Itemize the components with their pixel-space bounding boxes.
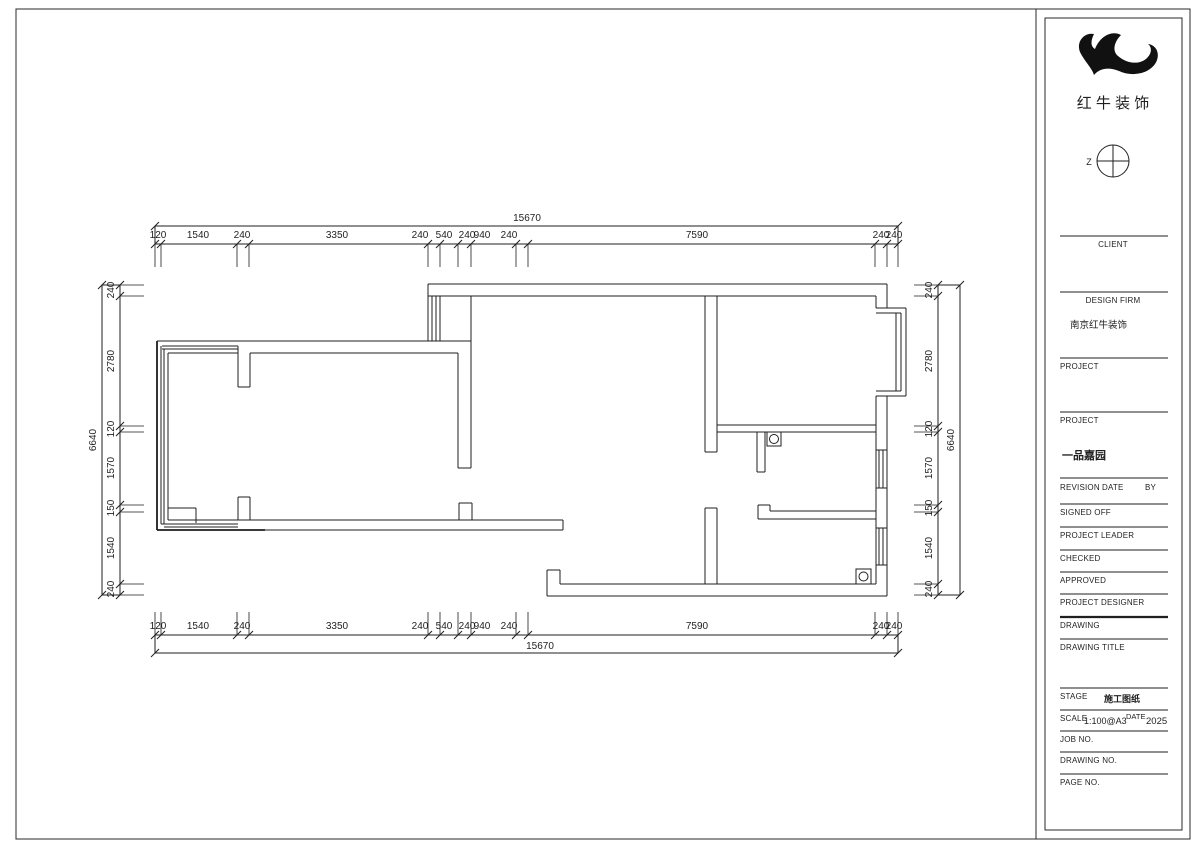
dim-label: 1540 (106, 536, 117, 559)
project-label: PROJECT (1060, 362, 1099, 371)
flue-circle-icon (770, 435, 779, 444)
dim-label: 3350 (326, 230, 349, 241)
dim-label: 120 (106, 420, 117, 437)
stage-value: 施工图纸 (1104, 693, 1140, 704)
dim-witness (155, 612, 898, 635)
dim-label: 2780 (106, 349, 117, 372)
dim-label: 1540 (187, 621, 210, 632)
dim-label: 240 (924, 580, 935, 597)
drawing-title-label: DRAWING TITLE (1060, 643, 1125, 652)
flue-symbol (856, 569, 871, 584)
design-firm-label: DESIGN FIRM (1086, 296, 1141, 305)
dim-label: 240 (234, 621, 251, 632)
dim-label: 240 (501, 230, 518, 241)
dim-label: 3350 (326, 621, 349, 632)
dim-witness (120, 285, 144, 595)
dim-label-overall: 15670 (513, 213, 541, 224)
title-block: 红 牛 装 饰 Z CLIENT DESIGN FIRM (1060, 33, 1168, 787)
flue-circle-icon (859, 572, 868, 581)
project-leader-label: PROJECT LEADER (1060, 531, 1134, 540)
dim-label: 240 (886, 230, 903, 241)
project-designer-label: PROJECT DESIGNER (1060, 598, 1144, 607)
dim-label: 7590 (686, 230, 709, 241)
sheet-frame (16, 9, 1190, 839)
dim-label: 240 (501, 621, 518, 632)
dim-label: 240 (924, 281, 935, 298)
dim-label-overall: 6640 (88, 428, 99, 451)
dim-label: 240 (234, 230, 251, 241)
company-name: 红 牛 装 饰 (1077, 95, 1150, 112)
page-no-label: PAGE NO. (1060, 778, 1100, 787)
dim-label: 120 (150, 621, 167, 632)
dim-label: 240 (886, 621, 903, 632)
north-arrow (1097, 145, 1129, 177)
dimension-top: 15670 120 1540 240 3350 240 540 240 940 … (150, 213, 903, 267)
dim-label: 540 (436, 621, 453, 632)
dim-label: 120 (150, 230, 167, 241)
dimension-bottom: 120 1540 240 3350 240 540 240 940 240 75… (150, 612, 903, 657)
dim-label: 940 (474, 621, 491, 632)
scale-value: 1:100@A3 (1084, 716, 1127, 726)
dim-label: 240 (106, 580, 117, 597)
north-label: Z (1086, 157, 1092, 167)
dim-label: 2780 (924, 349, 935, 372)
scale-date-value: 2025 (1146, 716, 1167, 727)
dim-label: 120 (924, 420, 935, 437)
signed-off-label: SIGNED OFF (1060, 508, 1111, 517)
dim-label: 150 (924, 499, 935, 516)
drawing-no-label: DRAWING NO. (1060, 756, 1117, 765)
floor-plan (157, 284, 906, 596)
plan-walls-heavy (157, 341, 265, 530)
dim-witness (155, 244, 898, 267)
client-label: CLIENT (1098, 240, 1128, 249)
dim-label: 940 (474, 230, 491, 241)
checked-label: CHECKED (1060, 554, 1101, 563)
dim-label: 240 (106, 281, 117, 298)
sheet-border (16, 9, 1190, 839)
scale-date-label: DATE (1126, 712, 1145, 721)
plan-walls (157, 284, 906, 596)
dimension-left: 240 2780 120 1570 150 1540 240 6640 (88, 281, 144, 599)
stage-label: STAGE (1060, 692, 1088, 701)
drawing-label: DRAWING (1060, 621, 1100, 630)
design-firm-value: 南京红牛装饰 (1070, 319, 1127, 331)
dim-label-overall: 6640 (946, 428, 957, 451)
revision-label: REVISION (1060, 483, 1100, 492)
by-label: BY (1145, 483, 1157, 492)
dim-label: 150 (106, 499, 117, 516)
approved-label: APPROVED (1060, 576, 1106, 585)
dim-label: 1540 (187, 230, 210, 241)
job-no-label: JOB NO. (1060, 735, 1093, 744)
dim-label: 1540 (924, 536, 935, 559)
dim-label-overall: 15670 (526, 641, 554, 652)
date-label: DATE (1102, 483, 1124, 492)
dim-label: 7590 (686, 621, 709, 632)
dim-lines (155, 226, 898, 244)
dim-label: 540 (436, 230, 453, 241)
dim-label: 240 (412, 621, 429, 632)
floor-plan-sheet: 15670 120 1540 240 3350 240 540 240 940 … (0, 0, 1200, 848)
dim-label: 1570 (106, 456, 117, 479)
project-label: PROJECT (1060, 416, 1099, 425)
project-value: 一品嘉园 (1062, 448, 1106, 462)
company-logo-icon (1079, 33, 1158, 75)
dim-label: 1570 (924, 456, 935, 479)
dimension-right: 240 2780 120 1570 150 1540 240 6640 (914, 281, 964, 599)
dim-label: 240 (412, 230, 429, 241)
